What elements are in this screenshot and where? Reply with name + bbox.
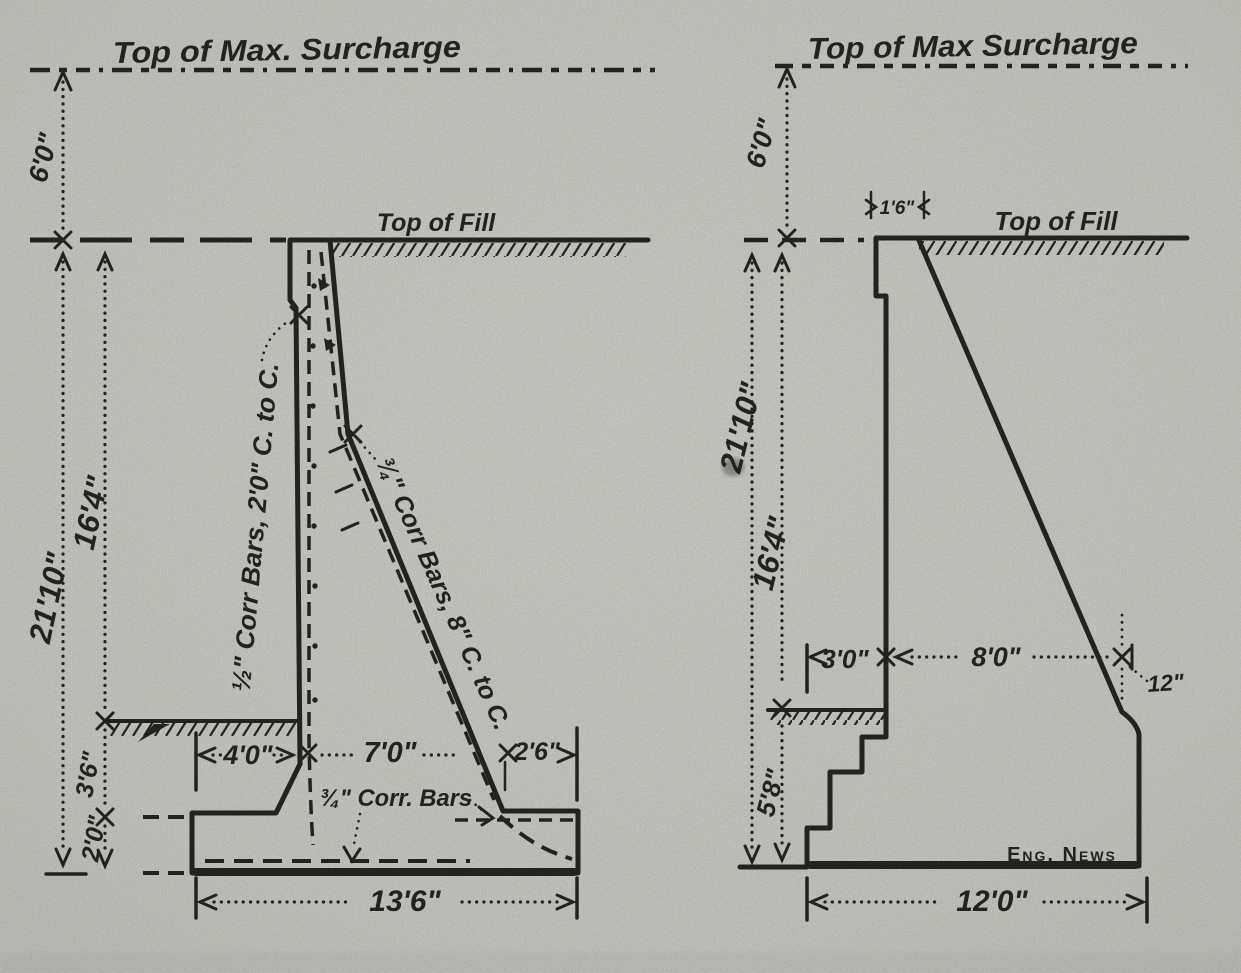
left-fill-hatching [331,243,626,257]
right-dim-top-width: 1'6" [880,198,916,219]
left-dim-base-width: 13'6" [369,885,441,918]
right-dim-batter-offset: 12" [1147,668,1186,697]
scan-shadow-band [0,952,1241,973]
footing-rebar-label: ¾" Corr. Bars [320,785,472,812]
left-dim-heel: 2'6" [513,738,561,766]
left-dim-toe: 4'0" [222,740,273,770]
publisher-credit: Eng. News [1007,844,1117,866]
scanned-engineering-drawing: Top of Max. Surcharge Top of Fill 6'0" 2… [0,0,1241,973]
paper-grain [0,0,1241,973]
right-surcharge-label: Top of Max Surcharge [808,27,1139,66]
right-dim-toe-offset: 3'0" [821,644,869,674]
right-dim-back-offset: 8'0" [971,642,1021,672]
right-fill-hatching [919,241,1164,255]
left-fill-label: Top of Fill [377,209,497,237]
right-fill-label: Top of Fill [994,206,1118,236]
drawing-canvas: Top of Max. Surcharge Top of Fill 6'0" 2… [0,0,1241,973]
left-ground-hatching [108,723,296,736]
left-surcharge-label: Top of Max. Surcharge [113,31,462,70]
left-dim-mid: 7'0" [364,737,418,769]
right-dim-base-width: 12'0" [956,885,1028,918]
